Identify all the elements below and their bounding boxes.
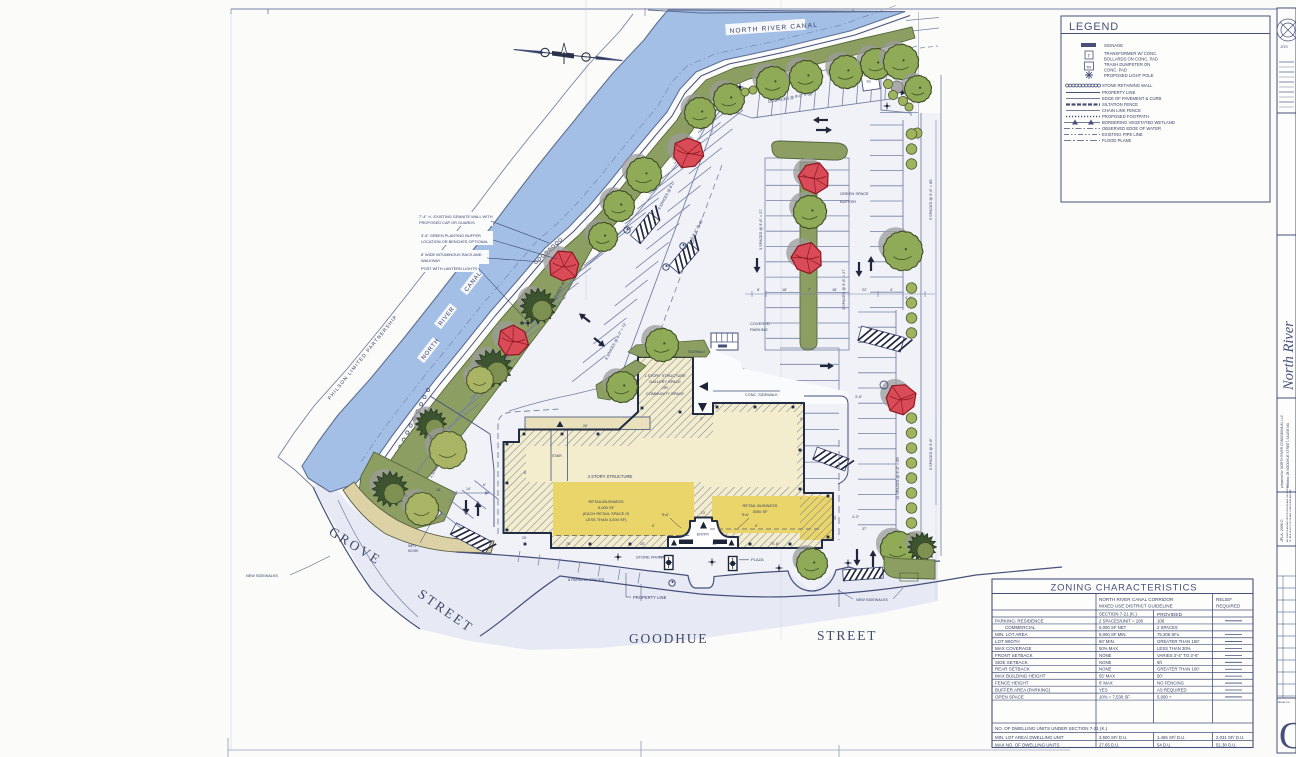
svg-text:JOS: JOS: [1280, 44, 1288, 49]
svg-text:18': 18': [782, 288, 787, 292]
svg-text:3'-6": 3'-6": [855, 395, 863, 399]
svg-text:13': 13': [701, 511, 706, 515]
svg-text:3 SPACES @ 9'-6" = 27': 3 SPACES @ 9'-6" = 27': [842, 269, 846, 310]
svg-text:TR: TR: [866, 80, 871, 84]
svg-text:75': 75': [566, 542, 571, 546]
svg-text:60' MIN.: 60' MIN.: [1099, 639, 1115, 644]
svg-text:ENTRY: ENTRY: [697, 533, 710, 537]
svg-text:GREEN SPACE: GREEN SPACE: [840, 191, 869, 196]
svg-text:PROPERTY LINE: PROPERTY LINE: [633, 595, 667, 600]
svg-text:TRANSFORMER W/ CONC.: TRANSFORMER W/ CONC.: [1104, 51, 1157, 56]
svg-text:MIN. LOT AREA/ DWELLING UNIT: MIN. LOT AREA/ DWELLING UNIT: [995, 735, 1064, 740]
svg-text:REQUIRED: REQUIRED: [1216, 604, 1241, 609]
svg-text:prepared for: NORTH RIVER COND: prepared for: NORTH RIVER CONDOMINIUM, L…: [1280, 414, 1284, 488]
svg-text:TRASH DUMPSTER ON: TRASH DUMPSTER ON: [1104, 62, 1150, 67]
svg-text:North River: North River: [1281, 321, 1296, 391]
svg-text:TR: TR: [1086, 66, 1091, 70]
svg-text:NONE: NONE: [1099, 660, 1112, 665]
svg-text:PROPOSED CAP OR GUARDS: PROPOSED CAP OR GUARDS: [419, 220, 475, 225]
svg-text:PLAZA: PLAZA: [751, 557, 764, 562]
svg-text:T: T: [1088, 54, 1091, 59]
svg-text:AS REQUIRED: AS REQUIRED: [1157, 688, 1187, 693]
svg-text:8': 8': [757, 288, 760, 292]
svg-text:2,031 SF/ D.U.: 2,031 SF/ D.U.: [1216, 735, 1244, 740]
svg-text:3 SPACES @ 9'-6" = 27': 3 SPACES @ 9'-6" = 27': [759, 209, 763, 250]
svg-text:location: 28 GOODHUE STREET: location: 28 GOODHUE STREET, SALEM MA: [1286, 422, 1290, 488]
svg-text:27.65 D.U.: 27.65 D.U.: [1099, 743, 1120, 748]
svg-text:10 SPACES @ 9'-6" = 95': 10 SPACES @ 9'-6" = 95': [896, 457, 900, 500]
svg-text:OPEN SPACE: OPEN SPACE: [995, 694, 1024, 699]
svg-text:5 SPACES @ 9'-6": 5 SPACES @ 9'-6": [929, 438, 933, 470]
svg-text:34': 34': [833, 515, 837, 520]
svg-text:37': 37': [862, 527, 867, 531]
svg-text:RELIEF: RELIEF: [1216, 597, 1232, 602]
svg-text:6,000 SF NET: 6,000 SF NET: [1099, 625, 1127, 630]
svg-text:2 SPACES: 2 SPACES: [1157, 625, 1178, 630]
svg-text:4 STORY STRUCTURE: 4 STORY STRUCTURE: [588, 474, 633, 479]
svg-text:OR: OR: [662, 385, 668, 390]
svg-text:OBSERVED EDGE OF WATER: OBSERVED EDGE OF WATER: [1102, 126, 1161, 131]
svg-text:4': 4': [890, 288, 893, 292]
svg-text:NONE: NONE: [1099, 653, 1112, 658]
svg-text:STONE RETAINING WALL: STONE RETAINING WALL: [1102, 83, 1153, 88]
svg-text:SECTION 7-21 (K.): SECTION 7-21 (K.): [1099, 612, 1137, 617]
svg-text:EXISTING PIPE LINE: EXISTING PIPE LINE: [1102, 132, 1143, 137]
svg-text:R=6': R=6': [662, 513, 669, 517]
svg-text:BOLLARDS ON CONC. PAD: BOLLARDS ON CONC. PAD: [1104, 57, 1158, 62]
svg-text:GALLERY SPACE: GALLERY SPACE: [649, 379, 681, 384]
svg-text:EDGE OF PAVEMENT & CURB: EDGE OF PAVEMENT & CURB: [1102, 96, 1162, 101]
svg-text:6': 6': [483, 483, 486, 487]
svg-text:YES: YES: [1099, 688, 1108, 693]
svg-text:NO FENCING: NO FENCING: [1157, 681, 1185, 686]
svg-text:(EACH RETAIL SPACE IS: (EACH RETAIL SPACE IS: [583, 511, 630, 516]
svg-text:LOCATION OR BENCHES OPTIONAL: LOCATION OR BENCHES OPTIONAL: [421, 239, 489, 244]
svg-text:75,306 SF±: 75,306 SF±: [1157, 632, 1180, 637]
svg-text:9': 9': [800, 417, 803, 421]
svg-text:70'-6": 70'-6": [770, 542, 780, 546]
svg-text:SILTATION FENCE: SILTATION FENCE: [1102, 102, 1138, 107]
svg-text:RETAIL/BUSINESS: RETAIL/BUSINESS: [588, 499, 623, 504]
svg-text:51.38 D.U.: 51.38 D.U.: [1216, 743, 1237, 748]
svg-text:VARIES 3'-4" TO 3'-6": VARIES 3'-4" TO 3'-6": [1157, 653, 1199, 658]
svg-text:6': 6': [755, 524, 758, 528]
svg-text:50% MAX: 50% MAX: [1099, 646, 1118, 651]
svg-text:54 D.U.: 54 D.U.: [1157, 743, 1172, 748]
svg-text:22': 22': [862, 288, 867, 292]
svg-text:PARKING: PARKING: [750, 327, 768, 332]
svg-text:2 SPACES/UNIT = 108: 2 SPACES/UNIT = 108: [1099, 618, 1144, 623]
svg-text:25': 25': [522, 536, 527, 540]
svg-text:FENCE HEIGHT: FENCE HEIGHT: [995, 681, 1029, 686]
svg-text:16': 16': [436, 488, 441, 492]
svg-text:JPLA: 2005-©: JPLA: 2005-©: [1280, 519, 1284, 542]
svg-text:C: C: [1279, 715, 1296, 757]
svg-text:14': 14': [712, 542, 717, 546]
svg-text:COMMERCIAL: COMMERCIAL: [995, 625, 1036, 630]
svg-text:6': 6': [652, 524, 655, 528]
svg-text:6' MAX: 6' MAX: [1099, 681, 1113, 686]
svg-text:INFO: INFO: [408, 544, 416, 548]
svg-text:108: 108: [1157, 618, 1165, 623]
svg-text:18': 18': [832, 288, 837, 292]
svg-text:8' WIDE BITUMINOUS RACK AND: 8' WIDE BITUMINOUS RACK AND: [421, 252, 482, 257]
svg-text:8,000 SF MIN.: 8,000 SF MIN.: [1099, 632, 1127, 637]
svg-text:5,000 +: 5,000 +: [1157, 694, 1172, 699]
svg-text:NO. OF DWELLING UNITS UNDER SE: NO. OF DWELLING UNITS UNDER SECTION 7-21…: [995, 726, 1108, 731]
svg-text:GREATER THAN 100': GREATER THAN 100': [1157, 667, 1200, 672]
svg-text:10% = 7,530 SF: 10% = 7,530 SF: [1099, 694, 1130, 699]
svg-text:8 PARKING SPACES: 8 PARKING SPACES: [568, 578, 605, 582]
svg-text:PROPERTY LINE: PROPERTY LINE: [1102, 90, 1136, 95]
svg-text:MAX NO. OF DWELLING UNITS: MAX NO. OF DWELLING UNITS: [995, 743, 1059, 748]
svg-text:NEW SIDEWALKS: NEW SIDEWALKS: [856, 598, 888, 602]
svg-text:R=6': R=6': [742, 513, 749, 517]
svg-text:FRONT SETBACK: FRONT SETBACK: [995, 653, 1033, 658]
svg-text:GREATER THAN 150': GREATER THAN 150': [1157, 639, 1200, 644]
svg-text:PARKING: RESIDENCE: PARKING: RESIDENCE: [995, 618, 1044, 623]
svg-text:STREET: STREET: [817, 628, 877, 643]
svg-text:FLOOD PLANE: FLOOD PLANE: [1102, 138, 1132, 143]
svg-text:5,000 SF: 5,000 SF: [598, 505, 615, 510]
svg-text:sheet no.: sheet no.: [1278, 700, 1291, 704]
svg-text:LESS THAN 30%: LESS THAN 30%: [1157, 646, 1191, 651]
svg-text:POST WITH LANTERN LIGHTS: POST WITH LANTERN LIGHTS: [421, 266, 477, 271]
svg-text:NONE: NONE: [1099, 667, 1112, 672]
svg-text:LOT WIDTH: LOT WIDTH: [995, 639, 1020, 644]
svg-text:14': 14': [466, 487, 471, 491]
svg-text:MAX BUILDING HEIGHT: MAX BUILDING HEIGHT: [995, 674, 1046, 679]
svg-text:6': 6': [524, 471, 527, 475]
svg-text:3000 SF: 3000 SF: [752, 509, 768, 514]
svg-text:OF JPLA. RIGHTS OF USE ARE CON: OF JPLA. RIGHTS OF USE ARE CONDITIONAL A…: [1289, 489, 1292, 542]
svg-text:RETAIL BUSINESS: RETAIL BUSINESS: [743, 503, 778, 508]
svg-text:55' MAX: 55' MAX: [1099, 674, 1115, 679]
svg-text:MAX COVERAGE: MAX COVERAGE: [995, 646, 1032, 651]
svg-text:SIGNAGE: SIGNAGE: [1104, 43, 1123, 48]
svg-text:50': 50': [1157, 674, 1163, 679]
svg-text:MIXED USE DISTRICT GUIDELINE: MIXED USE DISTRICT GUIDELINE: [1099, 604, 1173, 609]
svg-text:2': 2': [700, 417, 703, 421]
svg-text:PROPOSED LIGHT POLE: PROPOSED LIGHT POLE: [1104, 73, 1154, 78]
svg-text:SIDEWALK: SIDEWALK: [688, 350, 706, 354]
svg-text:SIDE SETBACK: SIDE SETBACK: [995, 660, 1028, 665]
svg-text:25': 25': [640, 542, 645, 546]
svg-text:CHAIN LINK FENCE: CHAIN LINK FENCE: [1102, 108, 1141, 113]
svg-text:3,500 SF/ D.U.: 3,500 SF/ D.U.: [1099, 735, 1127, 740]
svg-text:GOODHUE: GOODHUE: [629, 631, 708, 646]
svg-text:3'-6" GREEN PLANTING BUFFER: 3'-6" GREEN PLANTING BUFFER: [421, 233, 481, 238]
svg-text:NEW SIDEWALKS: NEW SIDEWALKS: [246, 574, 278, 578]
svg-text:LEGEND: LEGEND: [1069, 21, 1119, 33]
svg-text:CONC. SIDEWALK: CONC. SIDEWALK: [745, 393, 778, 397]
svg-text:COMMUNITY SPACE: COMMUNITY SPACE: [646, 391, 684, 396]
svg-text:1,465 SF/ D.U.: 1,465 SF/ D.U.: [1157, 735, 1185, 740]
svg-text:BUFFER AREA (PARKING): BUFFER AREA (PARKING): [995, 688, 1051, 693]
svg-text:REAR SETBACK: REAR SETBACK: [995, 667, 1030, 672]
svg-text:7'-4" +/- EXISTING GRANITE WAL: 7'-4" +/- EXISTING GRANITE WALL WITH: [419, 214, 493, 219]
svg-text:26': 26': [583, 424, 588, 428]
svg-text:KIOSK: KIOSK: [408, 549, 419, 553]
svg-text:5ft: 5ft: [1157, 660, 1163, 665]
svg-text:COVERED: COVERED: [750, 321, 770, 326]
svg-text:STAIR: STAIR: [552, 454, 562, 458]
svg-text:LESS THAN 3,000 SF): LESS THAN 3,000 SF): [586, 517, 628, 522]
svg-text:MIN. LOT AREA: MIN. LOT AREA: [995, 632, 1028, 637]
svg-text:ZONING CHARACTERISTICS: ZONING CHARACTERISTICS: [1051, 583, 1198, 594]
svg-text:CONC. PAD: CONC. PAD: [1104, 68, 1127, 73]
svg-text:NORTH RIVER CANAL CORRIDOR: NORTH RIVER CANAL CORRIDOR: [1099, 597, 1174, 602]
svg-text:4'-3": 4'-3": [852, 515, 860, 519]
svg-text:ALL IDEAL PLANS AND SPECIFICAT: ALL IDEAL PLANS AND SPECIFICATIONS ARE T…: [1286, 482, 1289, 542]
svg-text:1 STORY STRUCTURE: 1 STORY STRUCTURE: [644, 373, 686, 378]
svg-text:WALKWAY: WALKWAY: [421, 258, 441, 263]
svg-text:BUFFER: BUFFER: [840, 199, 856, 204]
svg-text:9 SPACES @ 9'-6" = 85': 9 SPACES @ 9'-6" = 85': [929, 179, 933, 220]
svg-text:PROPOSED FOOTPATH: PROPOSED FOOTPATH: [1102, 114, 1149, 119]
svg-text:7': 7': [808, 288, 811, 292]
svg-text:BORDERING VEGETATED WETLAND: BORDERING VEGETATED WETLAND: [1102, 120, 1175, 125]
